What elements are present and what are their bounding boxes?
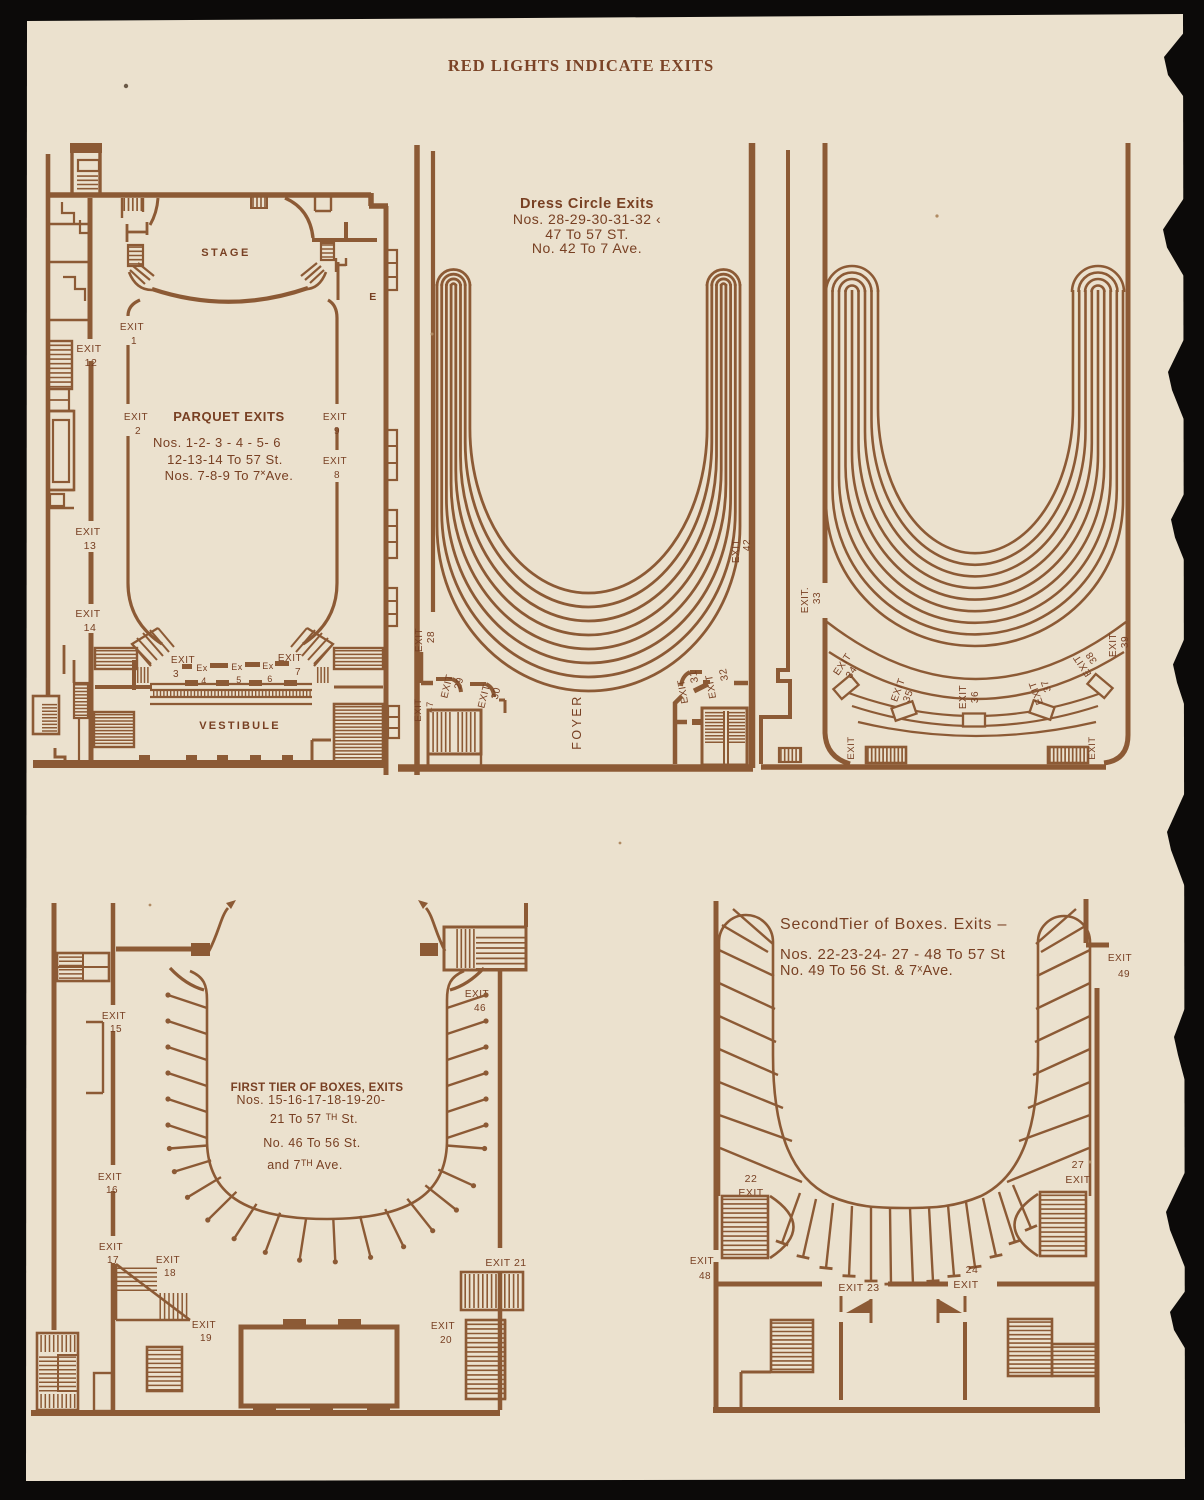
svg-text:EXIT: EXIT xyxy=(731,539,742,563)
svg-text:46: 46 xyxy=(474,1003,486,1014)
svg-text:VESTIBULE: VESTIBULE xyxy=(199,720,281,732)
svg-text:RED LIGHTS INDICATE EXITS: RED LIGHTS INDICATE EXITS xyxy=(448,56,714,75)
svg-text:12: 12 xyxy=(85,357,98,369)
svg-text:27: 27 xyxy=(1072,1159,1085,1171)
svg-text:Nos. 15-16-17-18-19-20-: Nos. 15-16-17-18-19-20- xyxy=(236,1093,385,1107)
svg-text:EXIT: EXIT xyxy=(431,1321,455,1332)
svg-text:STAGE: STAGE xyxy=(201,247,251,259)
svg-text:13: 13 xyxy=(84,540,97,552)
svg-text:16: 16 xyxy=(106,1185,118,1196)
svg-text:EXIT 23: EXIT 23 xyxy=(838,1282,879,1294)
svg-text:EXIT: EXIT xyxy=(1108,953,1132,964)
svg-text:33: 33 xyxy=(812,592,823,604)
svg-text:EXIT: EXIT xyxy=(1087,736,1098,759)
svg-text:22: 22 xyxy=(745,1173,758,1185)
svg-text:2: 2 xyxy=(135,426,141,437)
svg-text:EXIT: EXIT xyxy=(192,1320,216,1331)
svg-text:32: 32 xyxy=(717,667,731,682)
svg-text:48: 48 xyxy=(699,1271,711,1282)
svg-text:FOYER: FOYER xyxy=(570,694,584,750)
svg-text:EXIT 21: EXIT 21 xyxy=(485,1257,526,1269)
svg-text:EXIT.: EXIT. xyxy=(800,587,811,613)
svg-text:SecondTier of Boxes. Exits –: SecondTier of Boxes. Exits – xyxy=(780,916,1007,933)
svg-text:1: 1 xyxy=(131,336,137,347)
svg-text:19: 19 xyxy=(200,1333,212,1344)
svg-text:EXIT: EXIT xyxy=(98,1172,122,1183)
svg-text:15: 15 xyxy=(110,1024,122,1035)
svg-text:Ex: Ex xyxy=(196,663,208,673)
svg-text:EXIT: EXIT xyxy=(846,736,857,759)
svg-text:49: 49 xyxy=(1118,969,1130,980)
svg-text:9: 9 xyxy=(334,426,340,437)
svg-text:EXIT: EXIT xyxy=(414,628,425,652)
svg-text:28: 28 xyxy=(426,631,437,643)
svg-text:31: 31 xyxy=(687,669,701,684)
svg-text:20: 20 xyxy=(440,1335,452,1346)
svg-text:8: 8 xyxy=(334,470,340,481)
svg-text:No. 46 To 56 St.: No. 46 To 56 St. xyxy=(263,1136,360,1150)
svg-text:No. 49 To 56 St. & 7ˣAve.: No. 49 To 56 St. & 7ˣAve. xyxy=(780,963,953,979)
svg-text:7: 7 xyxy=(295,667,301,678)
svg-text:EXIT: EXIT xyxy=(953,1279,978,1291)
svg-text:Dress Circle Exits: Dress Circle Exits xyxy=(520,196,654,212)
svg-text:36: 36 xyxy=(970,691,981,703)
svg-text:14: 14 xyxy=(84,622,97,634)
svg-text:EXIT: EXIT xyxy=(76,343,101,355)
svg-text:3: 3 xyxy=(173,669,179,680)
svg-text:EXIT: EXIT xyxy=(99,1242,123,1253)
svg-text:EXIT: EXIT xyxy=(413,698,424,721)
svg-text:EXIT: EXIT xyxy=(156,1255,180,1266)
svg-text:Nos. 7-8-9 To 7˟Ave.: Nos. 7-8-9 To 7˟Ave. xyxy=(165,468,294,483)
svg-text:PARQUET EXITS: PARQUET EXITS xyxy=(173,409,285,424)
svg-text:EXIT: EXIT xyxy=(1108,633,1119,657)
svg-text:EXIT: EXIT xyxy=(958,685,969,709)
svg-text:Nos. 28-29-30-31-32 ‹: Nos. 28-29-30-31-32 ‹ xyxy=(513,211,661,227)
svg-text:EXIT: EXIT xyxy=(124,412,148,423)
svg-text:Nos. 22-23-24- 27 - 48 To 57 S: Nos. 22-23-24- 27 - 48 To 57 St xyxy=(780,946,1006,963)
svg-text:42: 42 xyxy=(742,539,753,551)
svg-text:No. 42 To 7 Ave.: No. 42 To 7 Ave. xyxy=(532,240,642,256)
svg-text:EXIT: EXIT xyxy=(75,608,100,620)
svg-text:EXIT: EXIT xyxy=(690,1256,714,1267)
svg-text:and 7ᵀᴴ Ave.: and 7ᵀᴴ Ave. xyxy=(267,1158,343,1172)
svg-text:39: 39 xyxy=(1120,636,1131,648)
svg-text:6: 6 xyxy=(267,674,273,684)
svg-text:Ex: Ex xyxy=(262,661,274,671)
svg-text:Nos. 1-2- 3 - 4 - 5- 6: Nos. 1-2- 3 - 4 - 5- 6 xyxy=(153,435,281,450)
svg-text:EXIT: EXIT xyxy=(1065,1174,1090,1186)
svg-text:21 To 57 ᵀᴴ St.: 21 To 57 ᵀᴴ St. xyxy=(270,1112,358,1126)
svg-text:EXIT: EXIT xyxy=(75,526,100,538)
svg-text:Ex: Ex xyxy=(231,662,243,672)
svg-text:EXIT: EXIT xyxy=(323,412,347,423)
svg-text:EXIT: EXIT xyxy=(323,456,347,467)
svg-text:12-13-14 To 57 St.: 12-13-14 To 57 St. xyxy=(167,452,283,467)
svg-text:EXIT: EXIT xyxy=(120,322,144,333)
svg-text:E: E xyxy=(369,291,377,303)
svg-text:24: 24 xyxy=(966,1264,979,1276)
svg-text:EXIT: EXIT xyxy=(102,1011,126,1022)
svg-text:18: 18 xyxy=(164,1268,176,1279)
